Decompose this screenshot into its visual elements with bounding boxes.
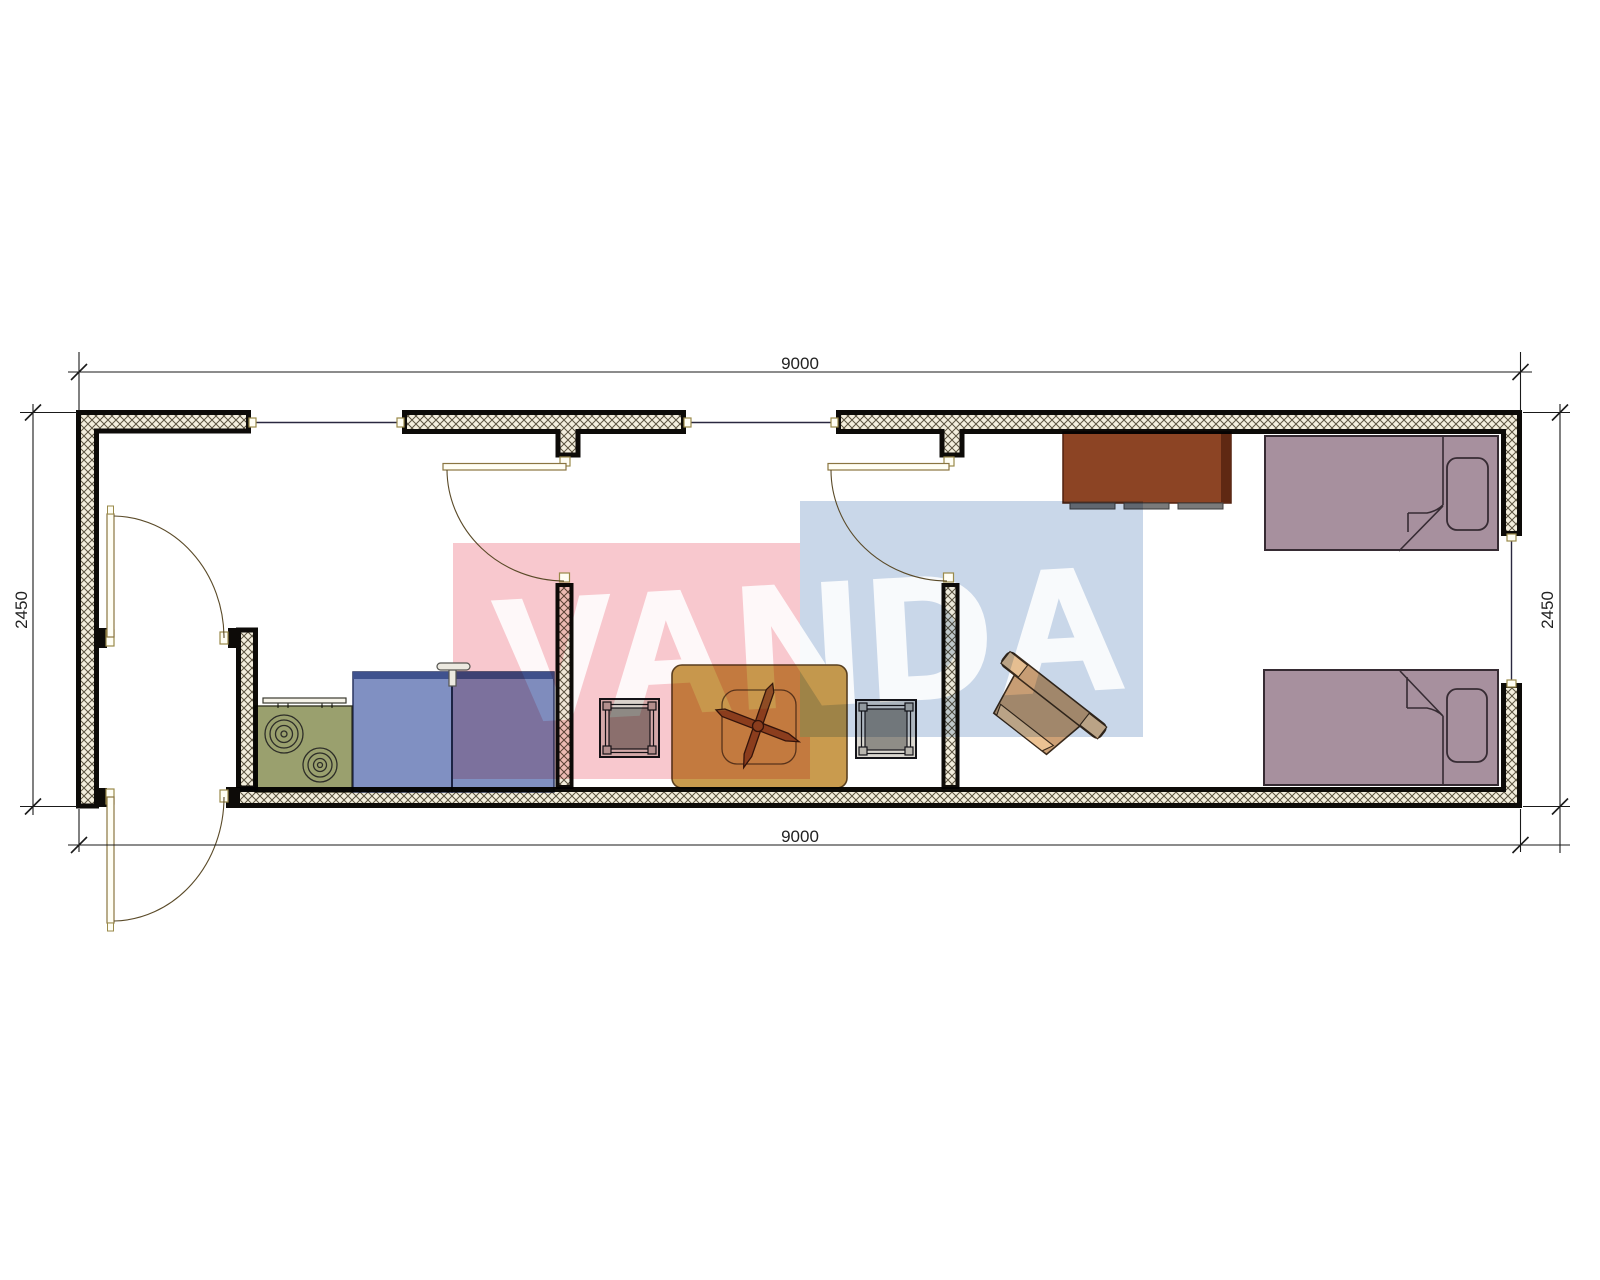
svg-text:9000: 9000 bbox=[781, 354, 819, 373]
svg-text:9000: 9000 bbox=[781, 827, 819, 846]
svg-text:2450: 2450 bbox=[12, 591, 31, 629]
svg-text:2450: 2450 bbox=[1538, 591, 1557, 629]
